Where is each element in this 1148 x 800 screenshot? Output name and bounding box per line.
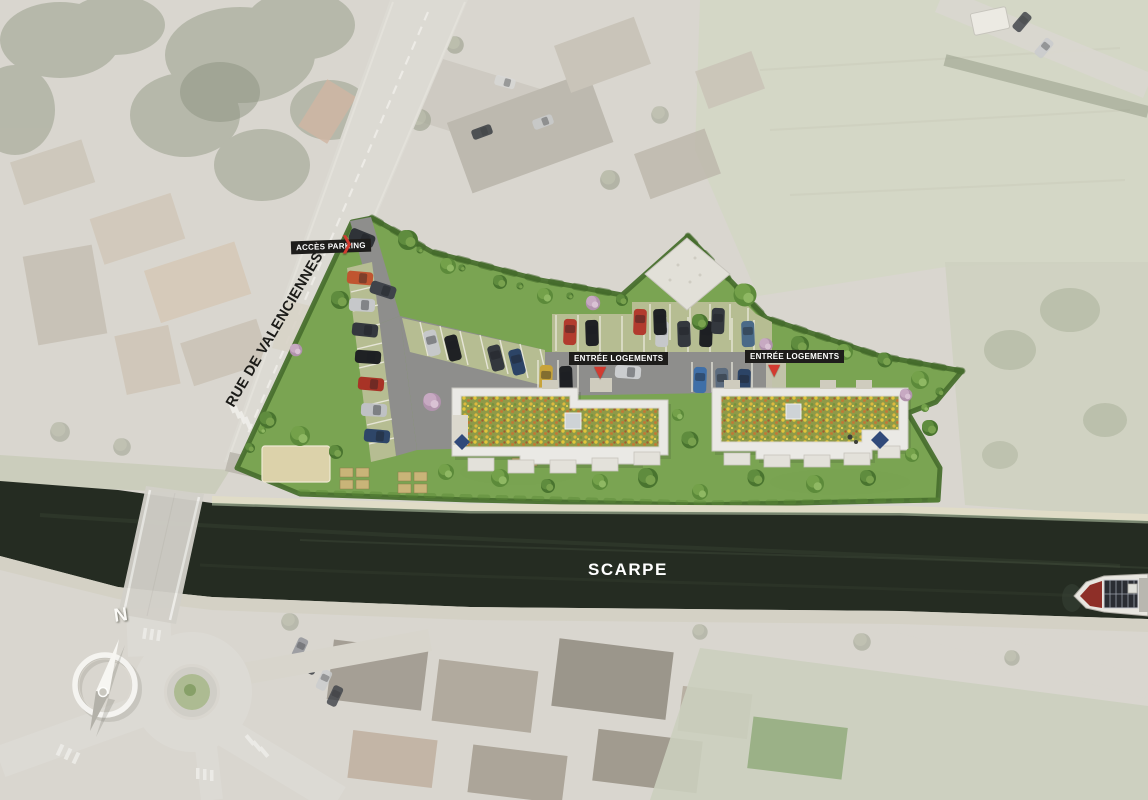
site-plan-page: ACCÈS PARKING ❯ ENTRÉE LOGEMENTS ▼ ENTRÉ… xyxy=(0,0,1148,800)
site-plan-rendering xyxy=(0,0,1148,800)
access-parking-arrow-icon: ❯ xyxy=(340,235,353,253)
waterway-name-label: SCARPE xyxy=(588,560,668,580)
compass-north-label: N xyxy=(113,604,130,628)
housing-entrance-west-arrow-icon: ▼ xyxy=(594,364,606,380)
housing-entrance-east-label: ENTRÉE LOGEMENTS xyxy=(745,350,844,363)
housing-entrance-east-arrow-icon: ▼ xyxy=(768,362,780,378)
petanque-court xyxy=(262,446,330,482)
housing-entrance-west-label: ENTRÉE LOGEMENTS xyxy=(569,352,668,365)
skylight xyxy=(786,404,801,419)
building-east xyxy=(712,380,911,467)
access-parking-label: ACCÈS PARKING xyxy=(291,239,371,255)
skylight xyxy=(565,413,581,429)
